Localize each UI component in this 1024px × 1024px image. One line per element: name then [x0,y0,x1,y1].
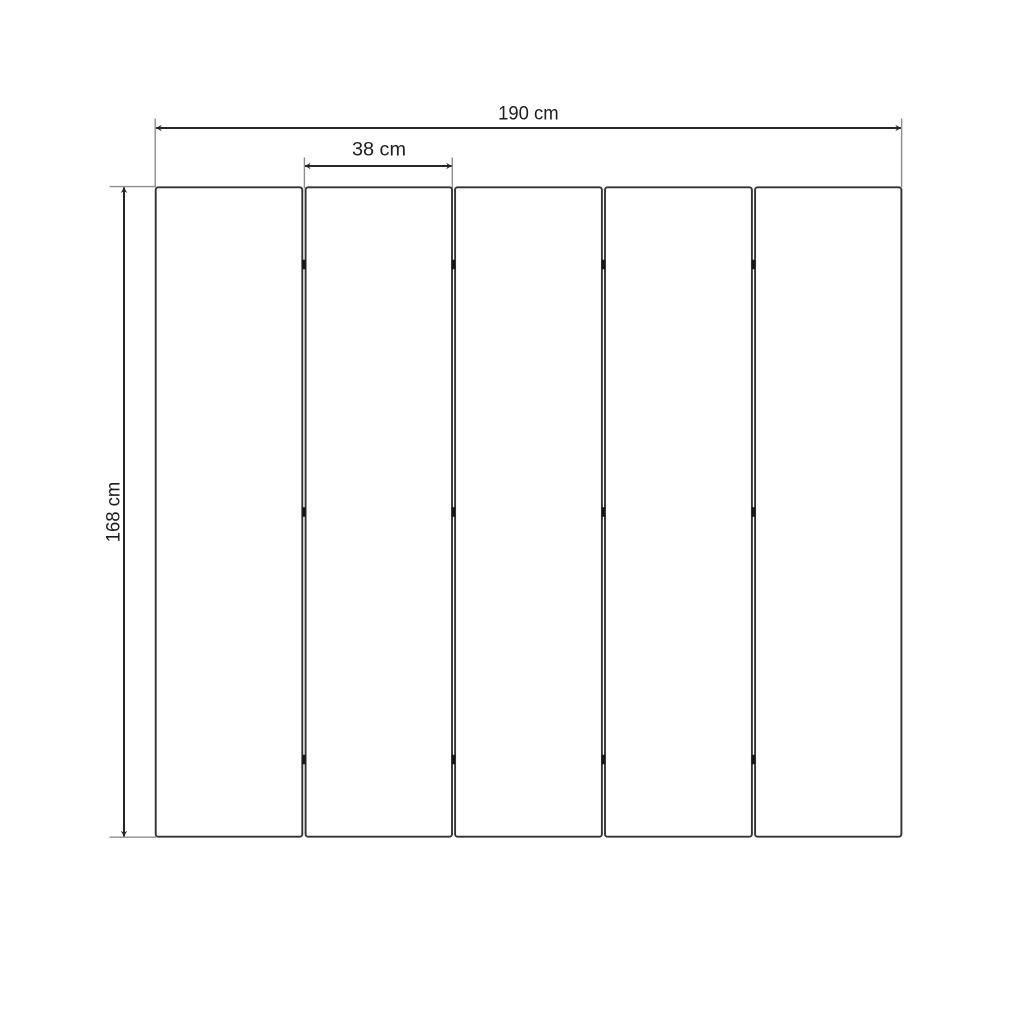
svg-text:168 cm: 168 cm [104,482,125,543]
svg-text:38 cm: 38 cm [352,139,406,160]
svg-text:190 cm: 190 cm [498,103,559,124]
